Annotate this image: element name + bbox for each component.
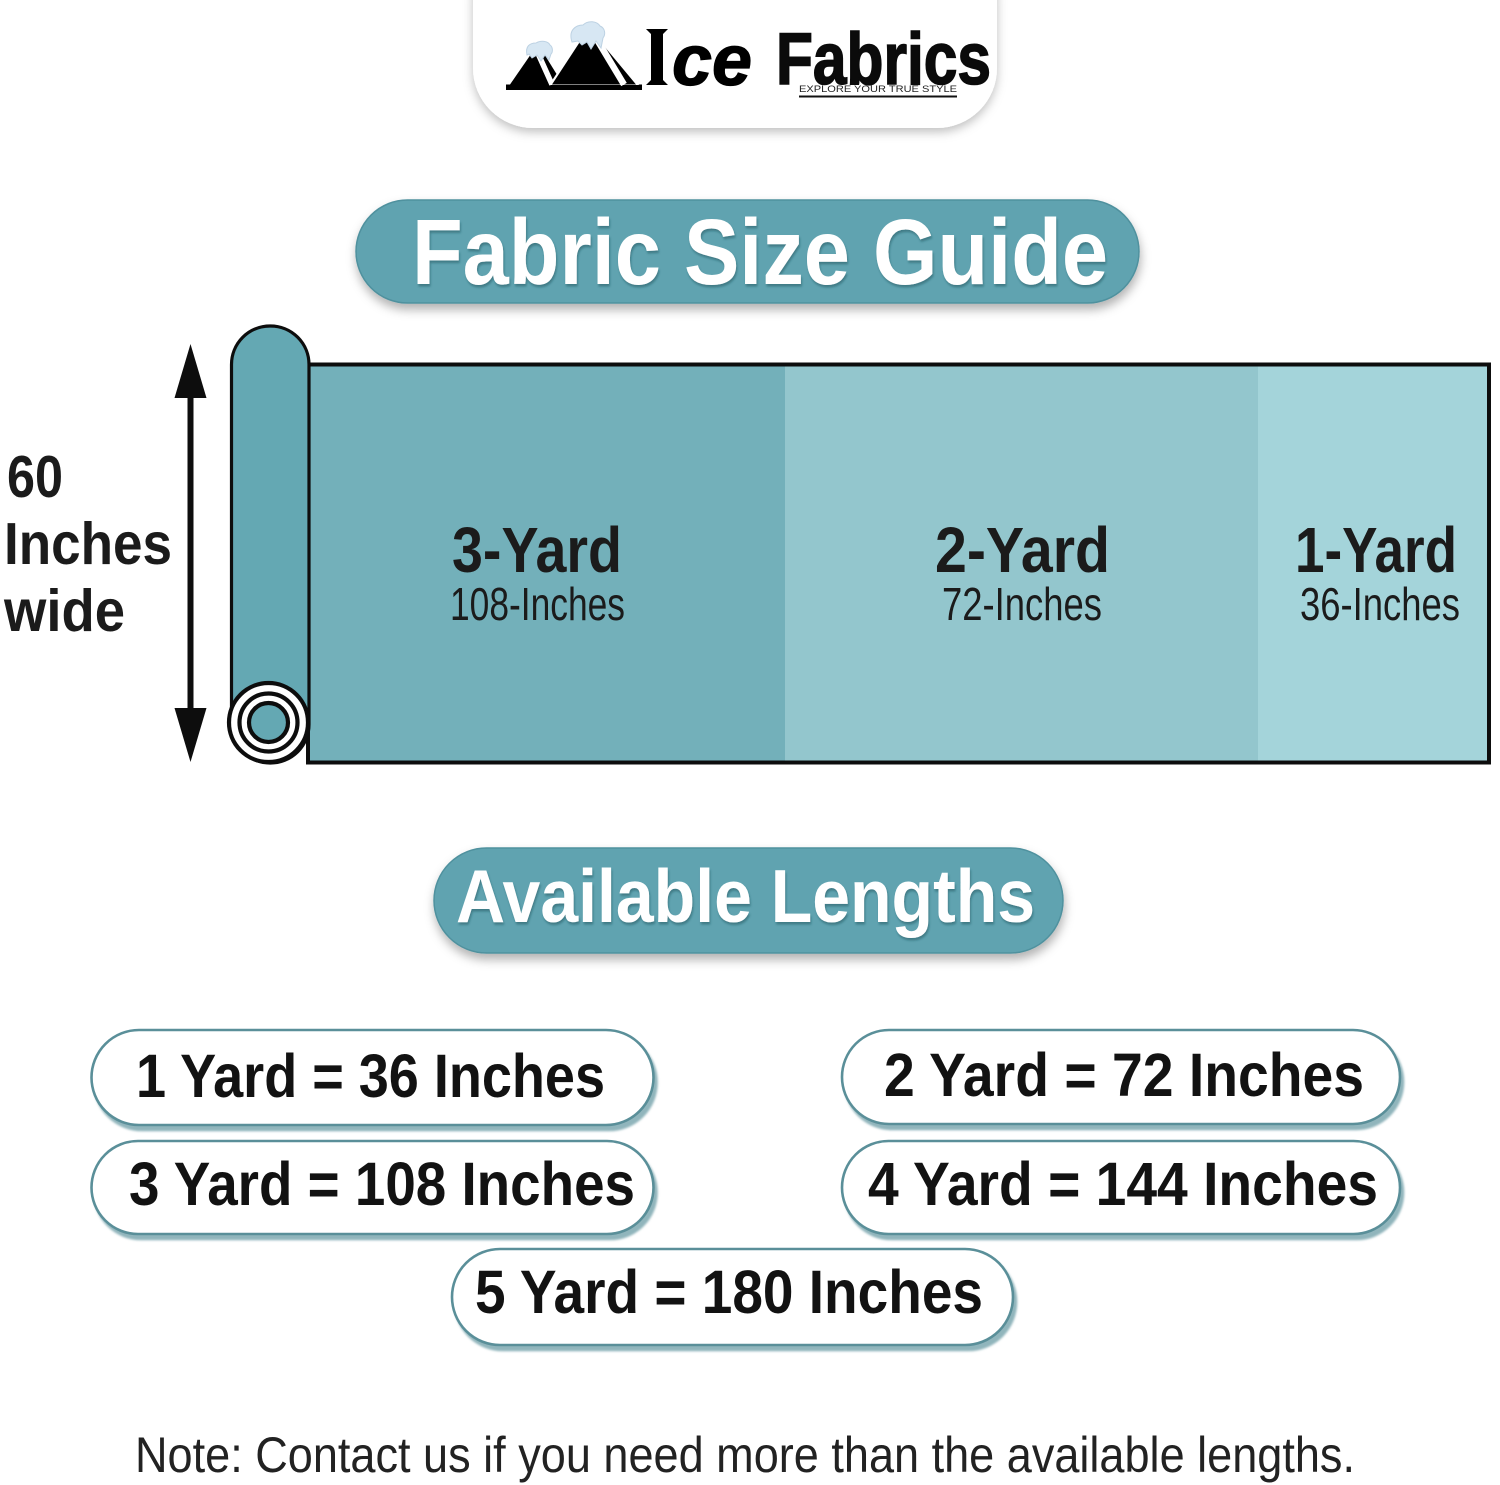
svg-text:3-Yard: 3-Yard <box>452 514 622 586</box>
svg-text:3 Yard = 108 Inches: 3 Yard = 108 Inches <box>129 1150 635 1218</box>
svg-text:4 Yard = 144 Inches: 4 Yard = 144 Inches <box>868 1150 1378 1218</box>
svg-text:60: 60 <box>7 444 63 510</box>
svg-text:108-Inches: 108-Inches <box>450 578 625 630</box>
svg-text:5 Yard = 180 Inches: 5 Yard = 180 Inches <box>475 1258 983 1326</box>
svg-text:72-Inches: 72-Inches <box>942 578 1102 630</box>
svg-text:1-Yard: 1-Yard <box>1295 514 1457 586</box>
svg-text:2 Yard = 72 Inches: 2 Yard = 72 Inches <box>884 1041 1364 1109</box>
svg-text:Fabric Size Guide: Fabric Size Guide <box>412 200 1108 304</box>
svg-text:Inches: Inches <box>4 511 172 577</box>
svg-text:EXPLORE YOUR TRUE STYLE: EXPLORE YOUR TRUE STYLE <box>799 84 957 94</box>
svg-text:36-Inches: 36-Inches <box>1300 578 1460 630</box>
svg-text:wide: wide <box>3 578 125 644</box>
svg-text:1 Yard = 36 Inches: 1 Yard = 36 Inches <box>136 1042 605 1110</box>
svg-text:Note: Contact us if you need m: Note: Contact us if you need more than t… <box>135 1427 1355 1483</box>
svg-text:2-Yard: 2-Yard <box>935 514 1110 586</box>
svg-text:ce: ce <box>672 22 752 101</box>
svg-text:Available Lengths: Available Lengths <box>456 854 1035 938</box>
